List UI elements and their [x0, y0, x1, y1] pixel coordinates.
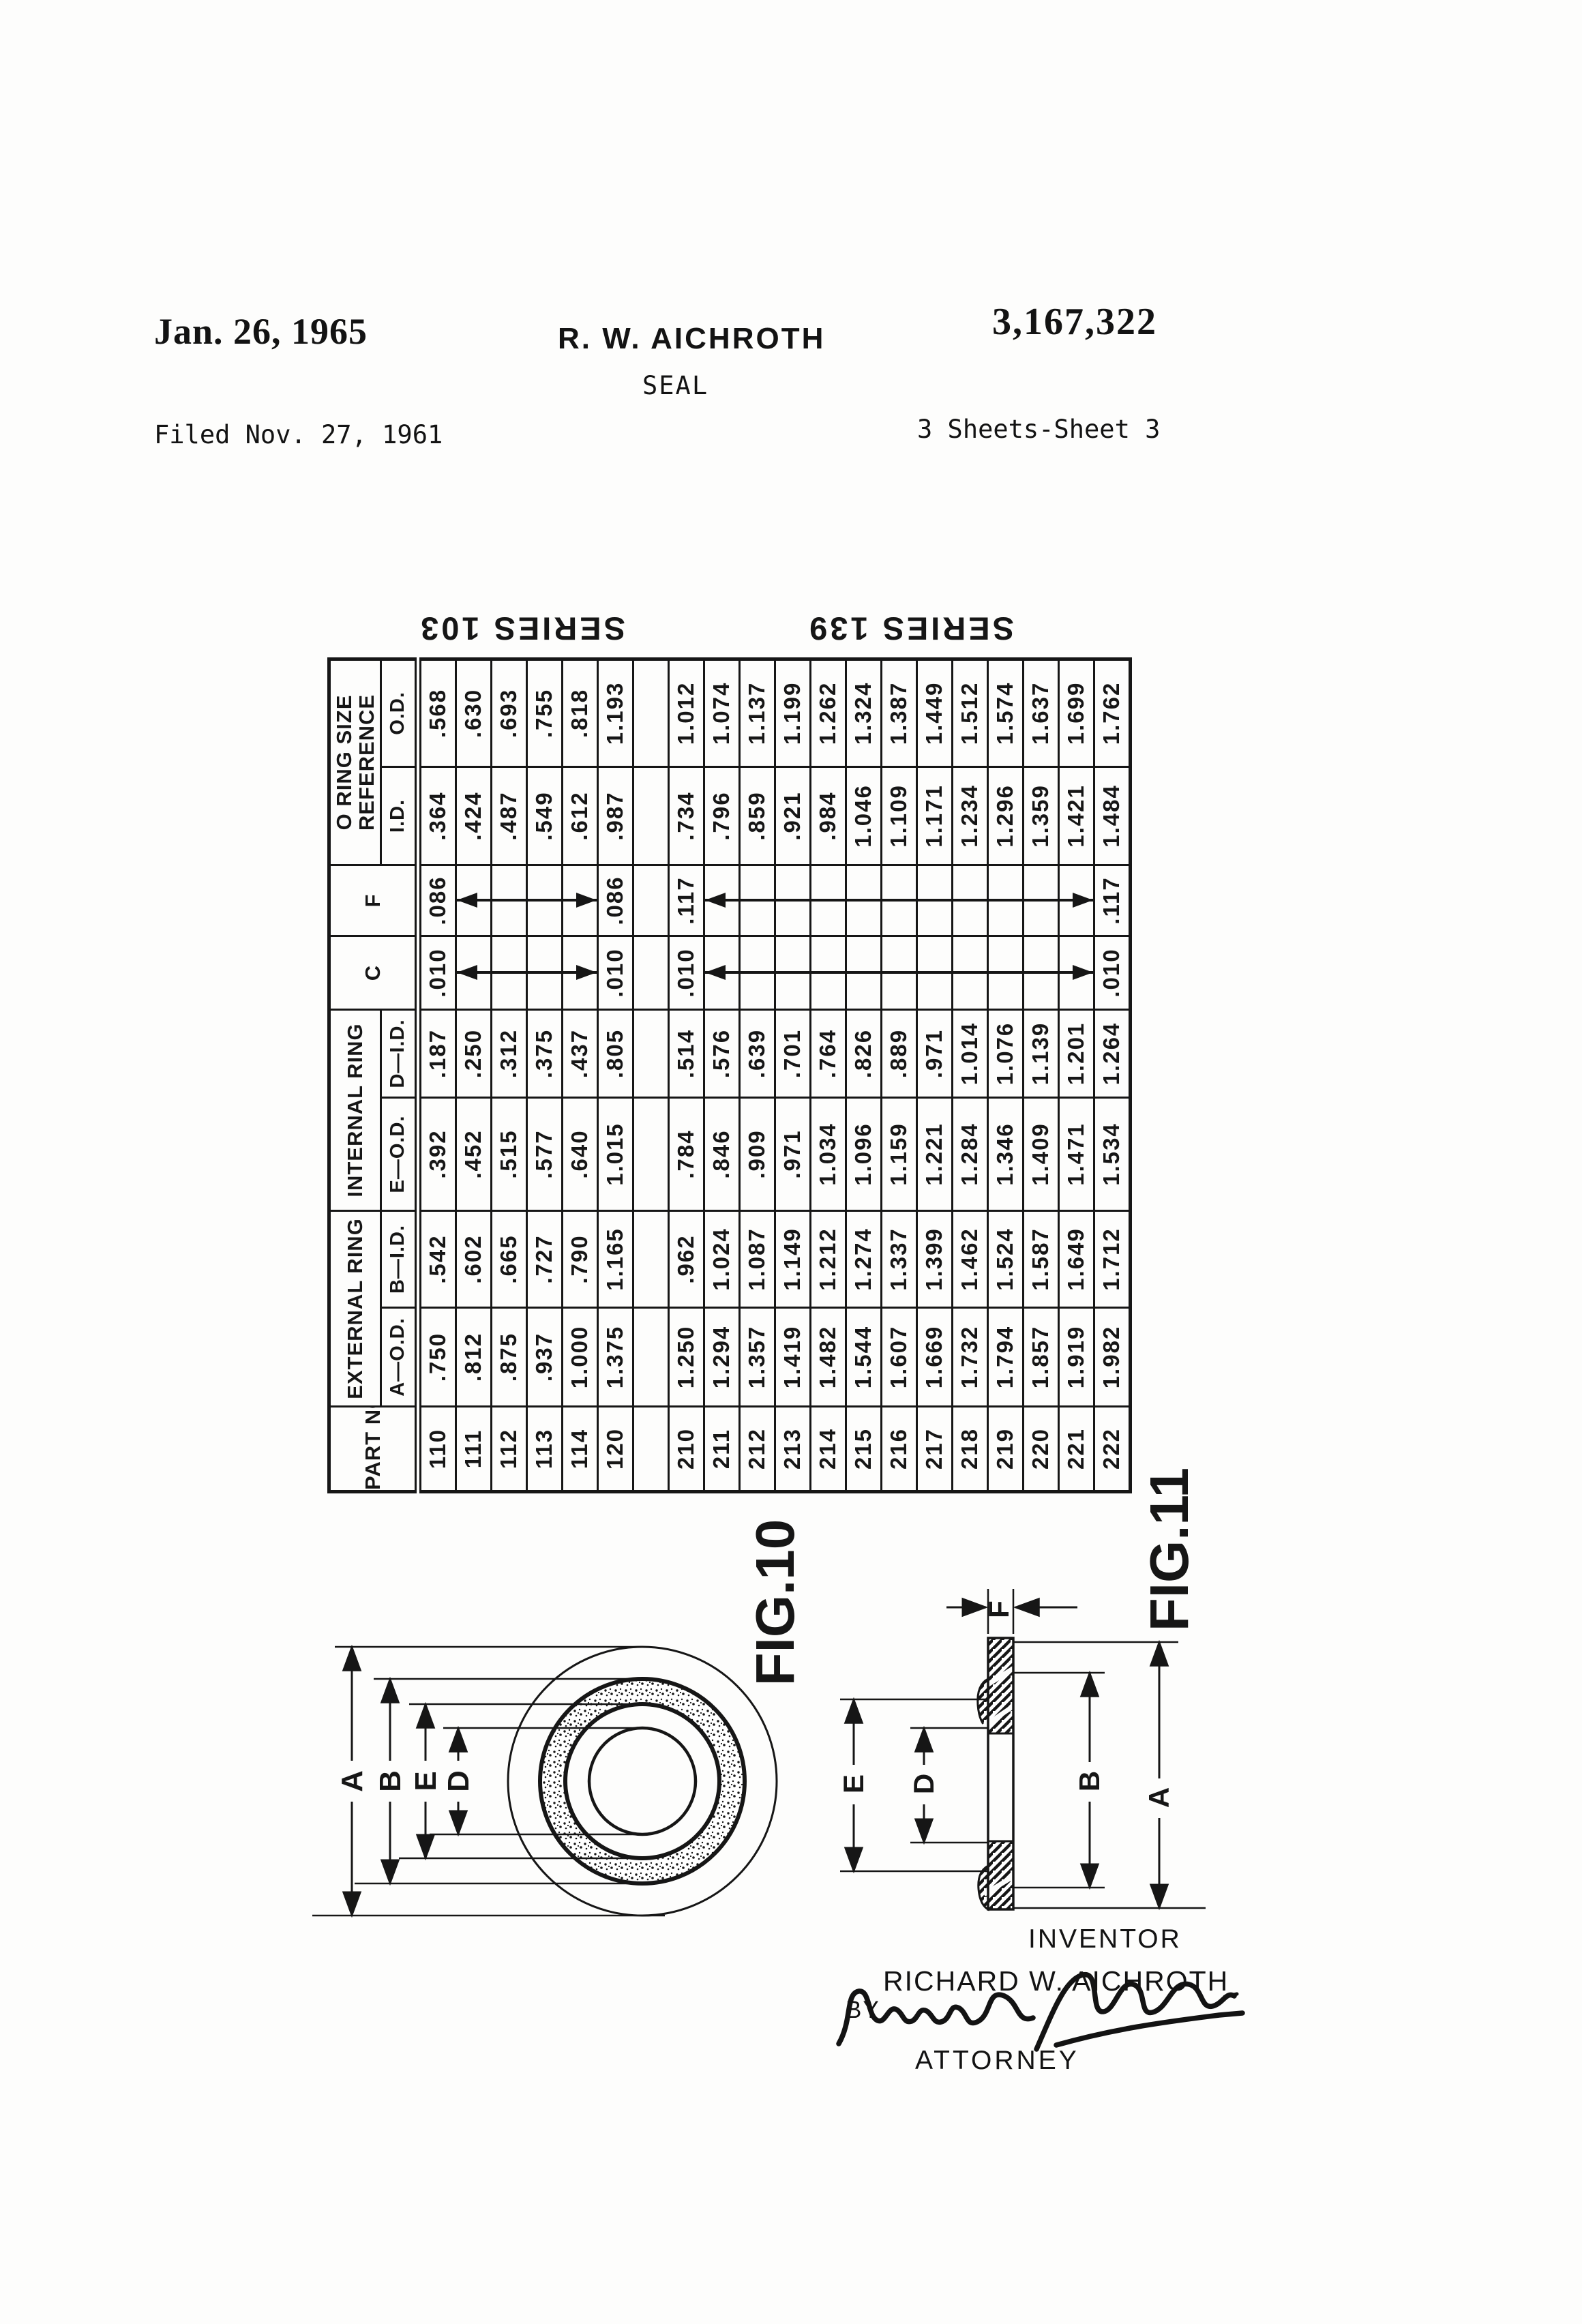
fig11-letter-b: B [1073, 1771, 1105, 1791]
fig10-letter-e: E [409, 1771, 443, 1791]
fig11-bottom-oring-bulge [979, 1866, 988, 1909]
fig10-external-ring-id-circle [540, 1679, 745, 1883]
fig10-letter-b: B [374, 1770, 407, 1792]
fig10-oring-stipple-band [553, 1692, 732, 1871]
inventor-name: RICHARD W. AICHROTH [883, 1965, 1229, 1997]
figures-layer: A B E D FIG.10 [0, 0, 1582, 2324]
fig11-bottom-section [988, 1841, 1013, 1909]
fig11-label: FIG.11 [1139, 1468, 1199, 1631]
fig11-letter-a: A [1143, 1787, 1175, 1808]
fig11-letter-e: E [837, 1774, 869, 1793]
by-label: BY [846, 1997, 880, 2024]
fig10-dim-letters: A B E D [335, 1770, 475, 1792]
fig10-internal-ring-id-circle [589, 1728, 696, 1834]
fig10-label: FIG.10 [745, 1519, 805, 1686]
fig10-letter-d: D [442, 1770, 475, 1792]
fig10-letter-a: A [335, 1770, 369, 1792]
fig11-drawing [839, 1589, 1206, 1909]
inventor-heading: INVENTOR [1028, 1924, 1182, 1954]
attorney-label: ATTORNEY [915, 2046, 1079, 2076]
fig11-letter-f: F [983, 1600, 1015, 1618]
patent-sheet: Jan. 26, 1965 R. W. AICHROTH 3,167,322 S… [0, 0, 1582, 2324]
fig11-letter-d: D [908, 1774, 940, 1794]
